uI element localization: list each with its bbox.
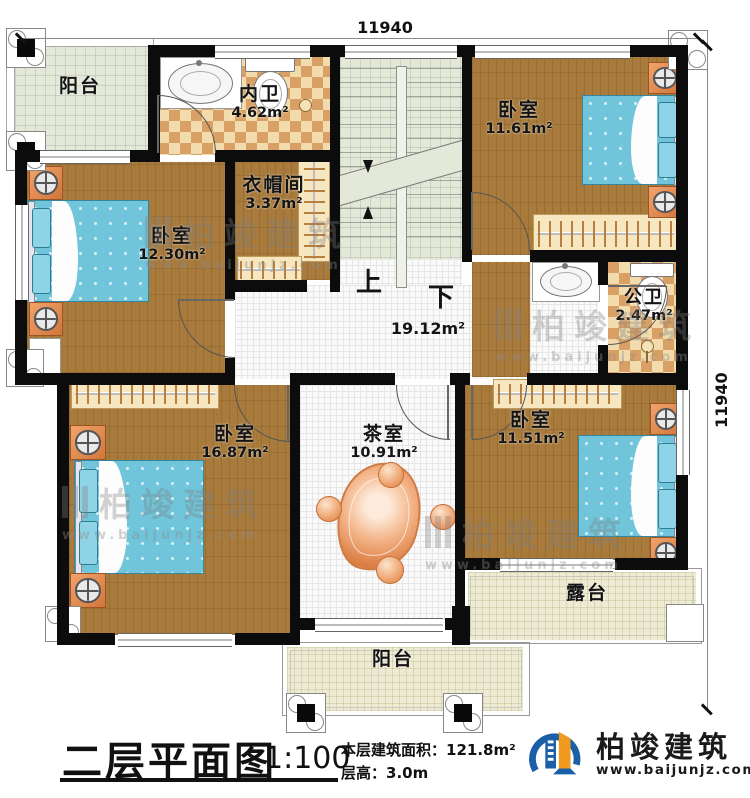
lamp-icon	[34, 171, 58, 195]
wall	[598, 345, 608, 373]
room-name: 卧室	[474, 410, 588, 431]
nightstand	[70, 425, 106, 460]
nightstand	[70, 573, 106, 608]
room-area: 16.87m²	[178, 445, 292, 462]
room-area: 19.12m²	[372, 320, 484, 338]
pillar	[6, 28, 46, 68]
wall	[225, 280, 307, 292]
brand-url: www.baijunjz.com	[596, 762, 750, 778]
drawing-scale: 1:100	[264, 741, 350, 776]
wall	[290, 373, 300, 633]
wall	[57, 385, 69, 645]
floor-area-label: 本层建筑面积：	[341, 741, 446, 759]
dimension-line-top	[20, 38, 700, 39]
dimension-top-value: 11940	[340, 18, 430, 37]
lamp-icon	[653, 191, 677, 213]
sink-basin	[540, 266, 592, 297]
floor-height-value: 3.0m	[386, 764, 428, 782]
hall-area-label: 19.12m²	[372, 320, 484, 338]
stair-arrow-up-icon	[363, 206, 373, 219]
window	[40, 150, 130, 164]
bed	[74, 460, 204, 574]
room-label-inner-bath: 内卫 4.62m²	[208, 84, 312, 122]
brand-logo-icon	[524, 722, 586, 788]
pillar	[286, 693, 326, 733]
floor-height-label: 层高：	[341, 764, 386, 782]
wall	[235, 633, 300, 645]
door-leaf	[447, 385, 449, 439]
faucet-icon	[562, 263, 568, 269]
room-label-bedroom-bottom-right: 卧室 11.51m²	[474, 410, 588, 448]
pillar	[443, 693, 483, 733]
room-label-bedroom-left: 卧室 12.30m²	[116, 226, 228, 264]
room-name: 内卫	[208, 84, 312, 105]
bed	[578, 435, 682, 537]
drawing-info: 本层建筑面积：121.8m² 层高：3.0m	[341, 739, 516, 784]
window	[500, 558, 613, 572]
pillar	[666, 604, 704, 642]
room-label-balcony-top: 阳台	[38, 76, 122, 97]
wall	[527, 373, 688, 385]
floor-area-value: 121.8m²	[446, 741, 516, 759]
stairs-up-label: 上	[348, 262, 390, 299]
room-name: 卧室	[178, 424, 292, 445]
wall	[452, 606, 470, 645]
wall	[290, 373, 395, 385]
wall	[15, 373, 235, 385]
brand-logo: 柏竣建筑 www.baijunjz.com	[524, 722, 750, 788]
dimension-right-value: 11940	[712, 355, 731, 445]
wall	[455, 558, 500, 570]
room-label-terrace: 露台	[554, 583, 620, 604]
room-area: 12.30m²	[116, 247, 228, 264]
room-area: 3.37m²	[220, 196, 328, 213]
wall	[57, 633, 115, 645]
wall	[455, 373, 465, 630]
lamp-icon	[75, 578, 100, 602]
nightstand	[29, 302, 63, 336]
room-area: 2.47m²	[604, 308, 684, 325]
room-name: 阳台	[360, 649, 426, 670]
lamp-icon	[34, 307, 58, 331]
wall	[290, 618, 315, 630]
stool	[316, 496, 342, 522]
wall	[225, 150, 235, 300]
bed	[582, 95, 682, 185]
room-label-bedroom-bottom-left: 卧室 16.87m²	[178, 424, 292, 462]
room-area: 4.62m²	[208, 105, 312, 122]
room-name: 阳台	[38, 76, 122, 97]
stool	[430, 504, 456, 530]
wall	[530, 250, 688, 262]
lamp-icon	[75, 430, 100, 454]
floor-area-line: 本层建筑面积：121.8m²	[341, 739, 516, 762]
room-name: 卧室	[460, 100, 578, 121]
wall	[330, 45, 340, 292]
stool	[376, 556, 404, 584]
room-label-public-bath: 公卫 2.47m²	[604, 288, 684, 324]
window	[215, 45, 310, 59]
floor-plan: 阳台 内卫 4.62m² 卧室 11.61m² 衣帽间 3.37m² 卧室 12…	[0, 0, 750, 798]
room-name: 露台	[554, 583, 620, 604]
pillar-core	[454, 704, 472, 722]
lamp-icon	[653, 67, 677, 89]
door-leaf	[471, 385, 473, 439]
wardrobe	[533, 214, 678, 254]
door-leaf	[471, 192, 473, 250]
wall	[615, 558, 688, 570]
nightstand	[29, 166, 63, 200]
room-name: 公卫	[604, 288, 684, 308]
door-leaf	[178, 299, 234, 301]
room-name: 衣帽间	[220, 175, 328, 196]
stool	[378, 462, 404, 488]
room-area: 11.51m²	[474, 431, 588, 448]
door-leaf	[157, 95, 159, 153]
window	[475, 45, 630, 59]
room-label-cloakroom: 衣帽间 3.37m²	[220, 175, 328, 213]
room-label-balcony-bottom: 阳台	[360, 649, 426, 670]
floor-height-line: 层高：3.0m	[341, 762, 516, 785]
window	[15, 205, 29, 300]
room-name: 茶室	[330, 424, 438, 445]
wall	[598, 262, 608, 285]
room-area: 11.61m²	[460, 121, 578, 138]
room-label-bedroom-top-right: 卧室 11.61m²	[460, 100, 578, 138]
dimension-line-right	[707, 45, 708, 710]
title-underline	[60, 778, 338, 782]
drain-stem	[646, 351, 648, 363]
brand-name: 柏竣建筑	[596, 732, 750, 762]
window	[676, 390, 690, 475]
toilet-tank	[245, 57, 295, 72]
room-name: 卧室	[116, 226, 228, 247]
room-area: 10.91m²	[330, 445, 438, 462]
pillar-core	[297, 704, 315, 722]
lamp-icon	[655, 408, 677, 430]
window	[118, 633, 232, 647]
stair-arrow-down-icon	[363, 160, 373, 173]
stairs-down-label: 下	[420, 277, 462, 314]
window	[315, 618, 443, 632]
toilet-tank	[630, 263, 674, 277]
faucet-icon	[196, 60, 202, 66]
room-label-tea-room: 茶室 10.91m²	[330, 424, 438, 462]
window	[345, 45, 457, 59]
